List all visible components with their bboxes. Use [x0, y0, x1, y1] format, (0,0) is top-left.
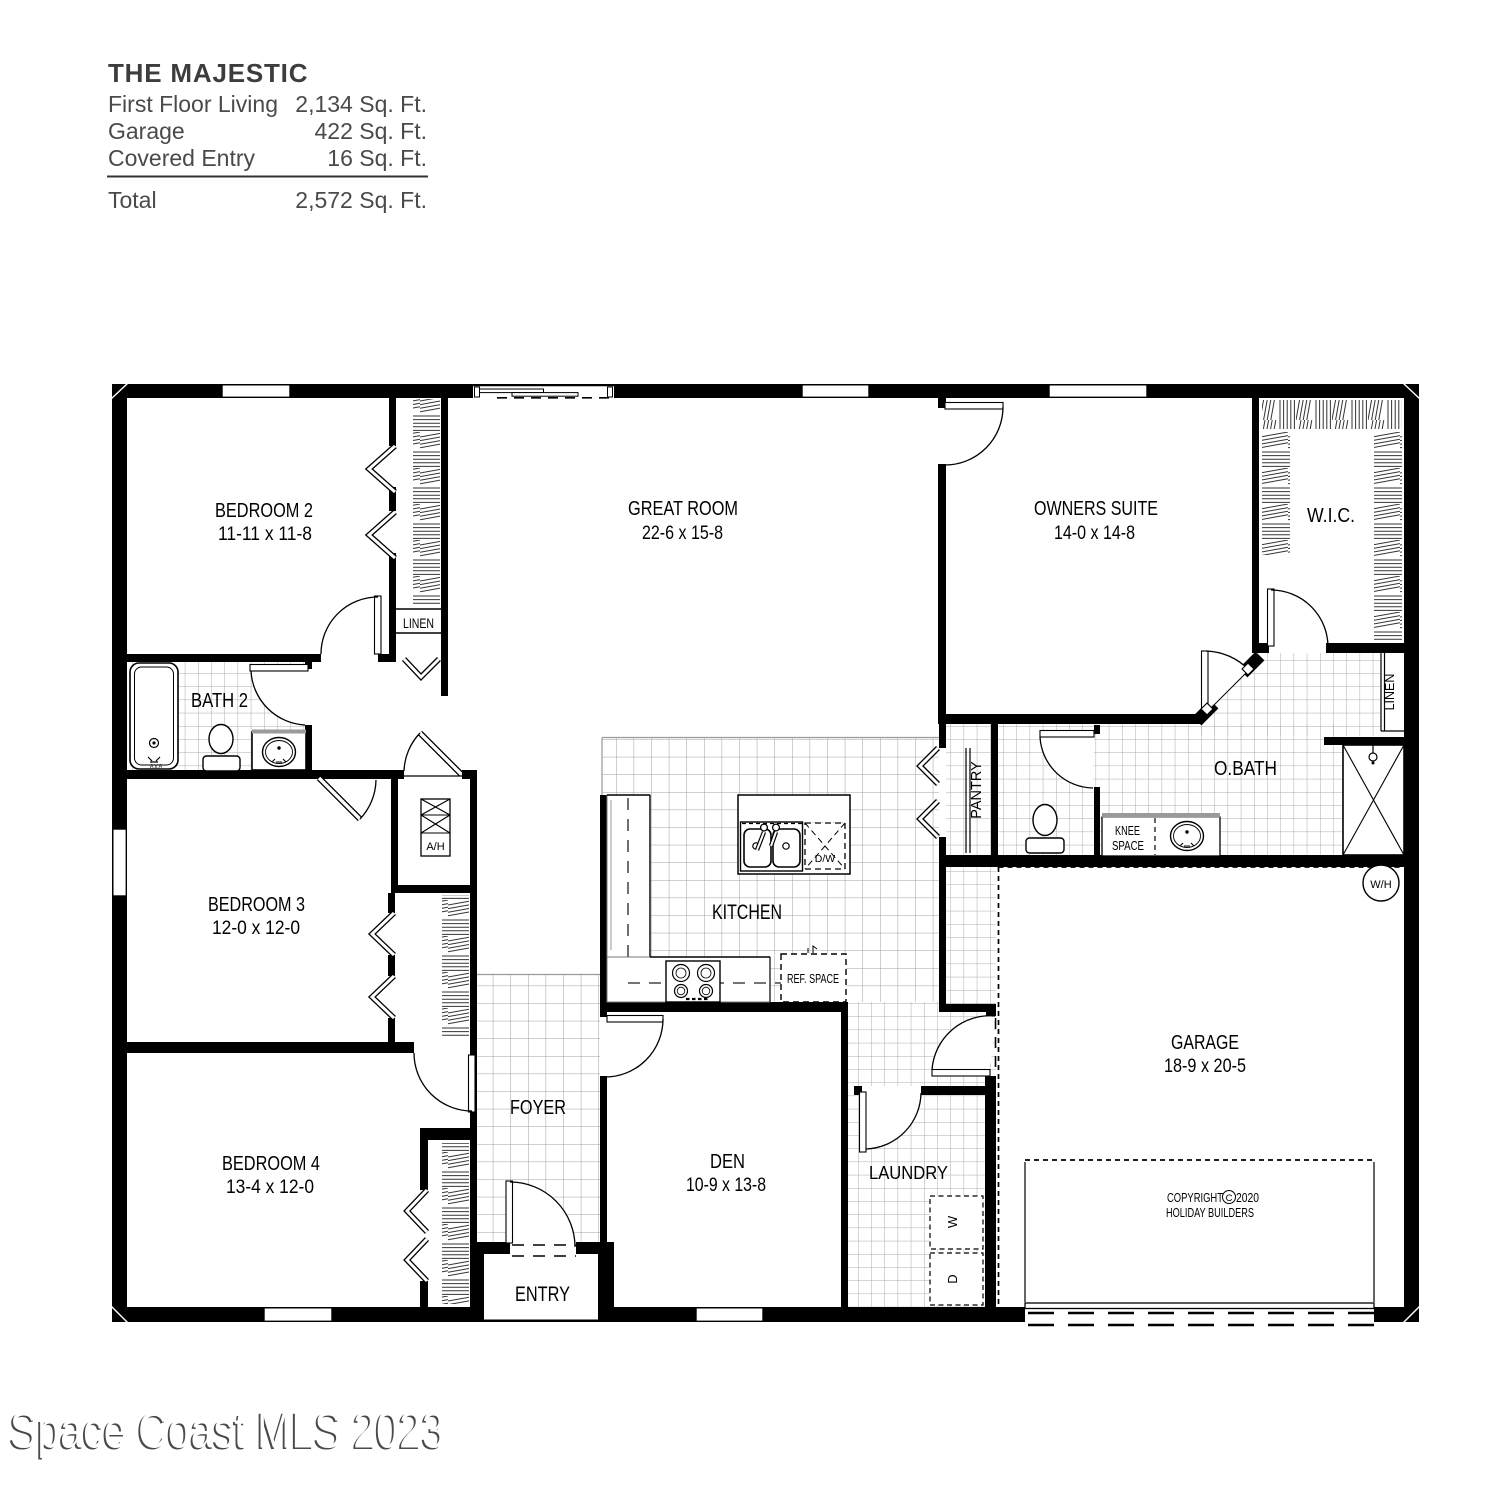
svg-text:2020: 2020 [1236, 1190, 1259, 1205]
svg-text:COPYRIGHT: COPYRIGHT [1167, 1190, 1223, 1205]
svg-text:BEDROOM 2: BEDROOM 2 [215, 499, 313, 522]
svg-text:2,134 Sq. Ft.: 2,134 Sq. Ft. [295, 91, 427, 117]
svg-text:OWNERS SUITE: OWNERS SUITE [1034, 497, 1158, 520]
svg-text:O.BATH: O.BATH [1214, 757, 1277, 780]
svg-text:BEDROOM 4: BEDROOM 4 [222, 1152, 320, 1175]
svg-text:W: W [945, 1215, 960, 1228]
svg-text:10-9 x 13-8: 10-9 x 13-8 [686, 1174, 766, 1196]
svg-text:KITCHEN: KITCHEN [712, 901, 782, 924]
svg-text:BEDROOM 3: BEDROOM 3 [208, 893, 305, 916]
svg-text:Space Coast MLS 2023: Space Coast MLS 2023 [10, 1402, 445, 1459]
svg-text:13-4 x 12-0: 13-4 x 12-0 [226, 1176, 314, 1198]
svg-text:Total: Total [108, 187, 157, 213]
svg-text:LINEN: LINEN [1383, 674, 1397, 711]
svg-text:GARAGE: GARAGE [1171, 1031, 1239, 1054]
svg-text:A/H: A/H [426, 841, 444, 853]
svg-text:KNEE: KNEE [1115, 824, 1140, 838]
svg-text:2,572 Sq. Ft.: 2,572 Sq. Ft. [295, 187, 427, 213]
svg-text:LINEN: LINEN [403, 615, 434, 631]
svg-text:12-0 x 12-0: 12-0 x 12-0 [212, 917, 300, 939]
svg-text:ENTRY: ENTRY [515, 1282, 570, 1306]
svg-text:HOLIDAY BUILDERS: HOLIDAY BUILDERS [1166, 1205, 1254, 1220]
svg-text:W/H: W/H [1370, 879, 1391, 891]
svg-text:D: D [945, 1274, 960, 1283]
svg-text:REF. SPACE: REF. SPACE [787, 971, 839, 986]
svg-text:D/W: D/W [815, 853, 836, 865]
svg-text:First Floor Living: First Floor Living [108, 91, 278, 117]
svg-text:Garage: Garage [108, 118, 185, 144]
svg-text:THE MAJESTIC: THE MAJESTIC [108, 58, 308, 88]
svg-text:Covered Entry: Covered Entry [108, 145, 256, 171]
svg-text:SPACE: SPACE [1112, 839, 1144, 853]
svg-text:DEN: DEN [710, 1150, 745, 1173]
svg-text:FOYER: FOYER [510, 1096, 566, 1119]
svg-text:14-0 x 14-8: 14-0 x 14-8 [1054, 522, 1135, 544]
svg-text:W.I.C.: W.I.C. [1307, 504, 1355, 527]
svg-text:GREAT ROOM: GREAT ROOM [628, 497, 738, 520]
svg-text:C: C [1226, 1193, 1233, 1204]
svg-text:8X8: 8X8 [150, 764, 163, 771]
svg-text:422 Sq. Ft.: 422 Sq. Ft. [314, 118, 427, 144]
svg-text:11-11 x 11-8: 11-11 x 11-8 [218, 523, 312, 545]
svg-text:18-9 x 20-5: 18-9 x 20-5 [1164, 1055, 1246, 1077]
svg-text:LAUNDRY: LAUNDRY [869, 1162, 948, 1183]
svg-text:16 Sq. Ft.: 16 Sq. Ft. [327, 145, 427, 171]
svg-text:BATH 2: BATH 2 [191, 689, 248, 712]
svg-text:22-6 x 15-8: 22-6 x 15-8 [642, 522, 723, 544]
svg-text:PANTRY: PANTRY [969, 761, 985, 819]
